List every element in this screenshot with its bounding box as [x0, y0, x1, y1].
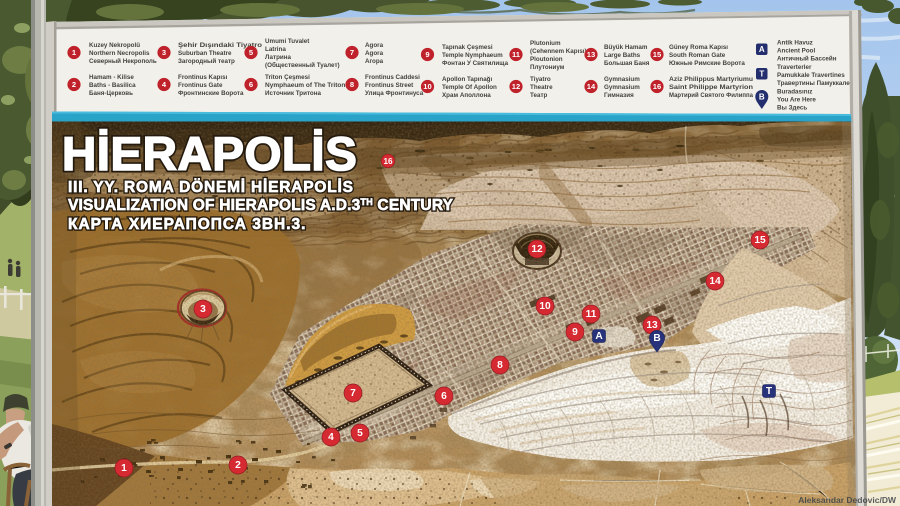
svg-text:Plutonium: Plutonium: [530, 40, 561, 47]
svg-text:Northern Necropolis: Northern Necropolis: [89, 50, 150, 57]
svg-text:III. YY. ROMA DÖNEMİ HİERAPOLİ: III. YY. ROMA DÖNEMİ HİERAPOLİS: [68, 179, 354, 196]
svg-text:Agora: Agora: [365, 42, 384, 49]
svg-text:Gymnasium: Gymnasium: [604, 84, 640, 91]
svg-text:1: 1: [121, 463, 127, 474]
svg-text:2: 2: [72, 80, 76, 89]
svg-text:Агора: Агора: [365, 58, 384, 65]
svg-text:14: 14: [709, 276, 721, 287]
svg-text:15: 15: [653, 50, 662, 59]
svg-text:Pamukkale Travertines: Pamukkale Travertines: [777, 72, 845, 79]
svg-text:Hamam - Kilise: Hamam - Kilise: [89, 74, 134, 81]
svg-text:Triton Çeşmesi: Triton Çeşmesi: [265, 74, 310, 81]
svg-text:5: 5: [357, 428, 363, 439]
svg-text:Kuzey Nekropolü: Kuzey Nekropolü: [89, 42, 140, 49]
svg-text:Baths - Basilica: Baths - Basilica: [89, 82, 136, 89]
svg-text:You Are Here: You Are Here: [777, 97, 816, 104]
svg-text:6: 6: [441, 391, 447, 402]
svg-text:Buradasınız: Buradasınız: [777, 89, 812, 96]
svg-text:Театр: Театр: [530, 92, 548, 99]
svg-text:12: 12: [531, 244, 543, 255]
svg-text:South Roman Gate: South Roman Gate: [669, 52, 726, 59]
svg-text:13: 13: [646, 320, 658, 331]
svg-text:Большая Баня: Большая Баня: [604, 60, 650, 67]
svg-text:11: 11: [512, 50, 521, 59]
svg-text:2: 2: [235, 460, 241, 471]
svg-text:Баня-Церковь: Баня-Церковь: [89, 90, 133, 97]
svg-text:10: 10: [423, 82, 431, 91]
svg-text:Apollon Tapınağı: Apollon Tapınağı: [442, 76, 492, 83]
svg-text:Large Baths: Large Baths: [604, 52, 641, 59]
svg-text:Büyük Hamam: Büyük Hamam: [604, 44, 648, 51]
svg-text:16: 16: [383, 157, 393, 166]
svg-text:Травертины Памуккале: Травертины Памуккале: [777, 80, 850, 87]
svg-text:VISUALIZATION OF HIERAPOLIS A.: VISUALIZATION OF HIERAPOLIS A.D.3TH CENT…: [68, 197, 454, 214]
svg-text:9: 9: [425, 50, 429, 59]
svg-text:8: 8: [350, 80, 354, 89]
svg-text:Temple Of Apollon: Temple Of Apollon: [442, 84, 497, 91]
svg-text:Umumi Tuvalet: Umumi Tuvalet: [265, 38, 309, 45]
svg-text:7: 7: [350, 388, 356, 399]
svg-text:Античный Бассейн: Античный Бассейн: [777, 56, 837, 63]
svg-text:Latrina: Latrina: [265, 46, 286, 53]
svg-text:4: 4: [328, 432, 334, 443]
svg-text:Улица Фронтинуса: Улица Фронтинуса: [365, 90, 424, 97]
svg-text:T: T: [759, 70, 764, 79]
svg-text:Gymnasium: Gymnasium: [604, 76, 640, 83]
svg-text:Tiyatro: Tiyatro: [530, 76, 551, 83]
svg-text:Frontinus Kapısı: Frontinus Kapısı: [178, 74, 228, 81]
svg-text:Temple Nymphaeum: Temple Nymphaeum: [442, 52, 503, 59]
svg-text:Северный Некрополь: Северный Некрополь: [89, 58, 157, 65]
svg-text:13: 13: [587, 50, 595, 59]
svg-text:Вы Здесь: Вы Здесь: [777, 105, 807, 112]
svg-text:Antik Havuz: Antik Havuz: [777, 40, 813, 47]
svg-text:HİERAPOLİS: HİERAPOLİS: [62, 128, 357, 181]
svg-text:Agora: Agora: [365, 50, 384, 57]
svg-text:Источник Тритона: Источник Тритона: [265, 90, 322, 97]
svg-text:(Cehennem Kapısı): (Cehennem Kapısı): [530, 48, 587, 55]
svg-text:8: 8: [497, 360, 503, 371]
svg-text:6: 6: [249, 80, 253, 89]
svg-text:16: 16: [653, 82, 661, 91]
svg-text:Фонтан У Святилища: Фонтан У Святилища: [442, 60, 509, 67]
svg-text:Мартирий Святого Филиппа: Мартирий Святого Филиппа: [669, 92, 753, 99]
svg-text:Гимназия: Гимназия: [604, 92, 634, 99]
svg-text:Aziz Philippus Martyriumu: Aziz Philippus Martyriumu: [669, 76, 753, 83]
svg-text:Фронтинские Ворота: Фронтинские Ворота: [178, 90, 244, 97]
svg-text:Tapınak Çeşmesi: Tapınak Çeşmesi: [442, 44, 493, 51]
svg-text:3: 3: [162, 48, 166, 57]
svg-text:15: 15: [754, 235, 766, 246]
svg-text:Храм Аполлона: Храм Аполлона: [442, 92, 491, 99]
svg-text:Traverterler: Traverterler: [777, 64, 812, 71]
svg-text:Nymphaeum of The Tritons: Nymphaeum of The Tritons: [265, 82, 350, 89]
svg-text:Ancient Pool: Ancient Pool: [777, 48, 815, 55]
svg-text:Frontinus Caddesi: Frontinus Caddesi: [365, 74, 420, 81]
svg-text:3: 3: [200, 304, 206, 315]
svg-text:9: 9: [572, 327, 578, 338]
svg-text:Южные Римские Ворота: Южные Римские Ворота: [669, 60, 745, 67]
svg-text:10: 10: [539, 301, 551, 312]
svg-text:(Общественный Туалет): (Общественный Туалет): [265, 62, 340, 69]
svg-text:КАРТА ХИЕРАПОПСА 3ВН.3.: КАРТА ХИЕРАПОПСА 3ВН.3.: [68, 216, 306, 233]
svg-text:Güney Roma Kapısı: Güney Roma Kapısı: [669, 44, 728, 51]
svg-text:A: A: [759, 45, 765, 54]
svg-text:B: B: [759, 93, 765, 102]
svg-text:Theatre: Theatre: [530, 84, 553, 91]
svg-text:Frontinus Street: Frontinus Street: [365, 82, 413, 89]
svg-text:Suburban Theatre: Suburban Theatre: [178, 50, 232, 57]
svg-text:7: 7: [350, 48, 354, 57]
svg-text:A: A: [595, 331, 603, 342]
svg-text:Saint Philippe Martyrion: Saint Philippe Martyrion: [669, 84, 753, 91]
svg-text:11: 11: [586, 309, 597, 320]
svg-text:Латрина: Латрина: [265, 54, 292, 61]
svg-text:12: 12: [512, 82, 520, 91]
svg-text:T: T: [766, 386, 773, 397]
svg-text:Aleksandar Dedovic/DW: Aleksandar Dedovic/DW: [798, 495, 897, 505]
svg-text:Frontinus Gate: Frontinus Gate: [178, 82, 223, 89]
svg-text:Загородный театр: Загородный театр: [178, 58, 235, 65]
svg-text:Ploutonion: Ploutonion: [530, 56, 563, 63]
svg-text:14: 14: [587, 82, 596, 91]
svg-text:B: B: [653, 333, 660, 344]
svg-text:Плутониум: Плутониум: [530, 64, 565, 71]
